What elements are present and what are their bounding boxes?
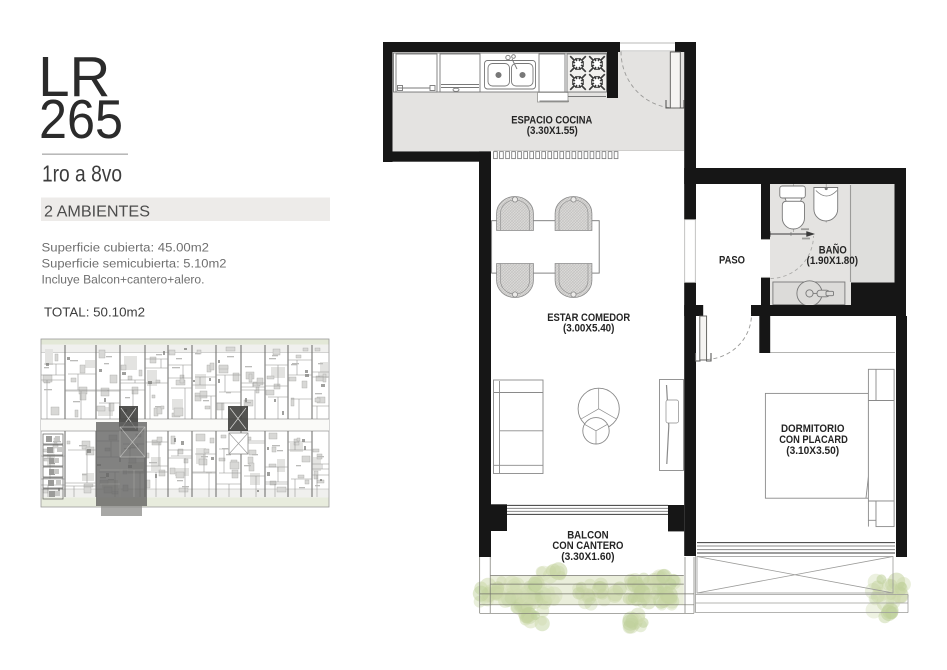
- svg-text:1ro a 8vo: 1ro a 8vo: [42, 161, 122, 187]
- svg-text:(3.30X1.60): (3.30X1.60): [561, 551, 614, 563]
- svg-text:Superficie cubierta: 45.00m2: Superficie cubierta: 45.00m2: [42, 241, 210, 255]
- svg-text:Superficie semicubierta: 5.10m: Superficie semicubierta: 5.10m2: [42, 257, 227, 271]
- svg-text:(3.00X5.40): (3.00X5.40): [563, 323, 615, 335]
- svg-text:(3.10X3.50): (3.10X3.50): [786, 445, 839, 457]
- svg-text:CON CANTERO: CON CANTERO: [552, 540, 623, 552]
- svg-text:2 AMBIENTES: 2 AMBIENTES: [44, 204, 150, 221]
- svg-text:PASO: PASO: [719, 255, 745, 267]
- svg-text:TOTAL: 50.10m2: TOTAL: 50.10m2: [44, 305, 145, 320]
- svg-text:(3.30X1.55): (3.30X1.55): [527, 125, 578, 137]
- svg-text:265: 265: [39, 88, 123, 150]
- svg-text:DORMITORIO: DORMITORIO: [781, 423, 845, 435]
- svg-text:(1.90X1.80): (1.90X1.80): [807, 255, 859, 267]
- svg-text:Incluye Balcon+cantero+alero.: Incluye Balcon+cantero+alero.: [42, 273, 205, 287]
